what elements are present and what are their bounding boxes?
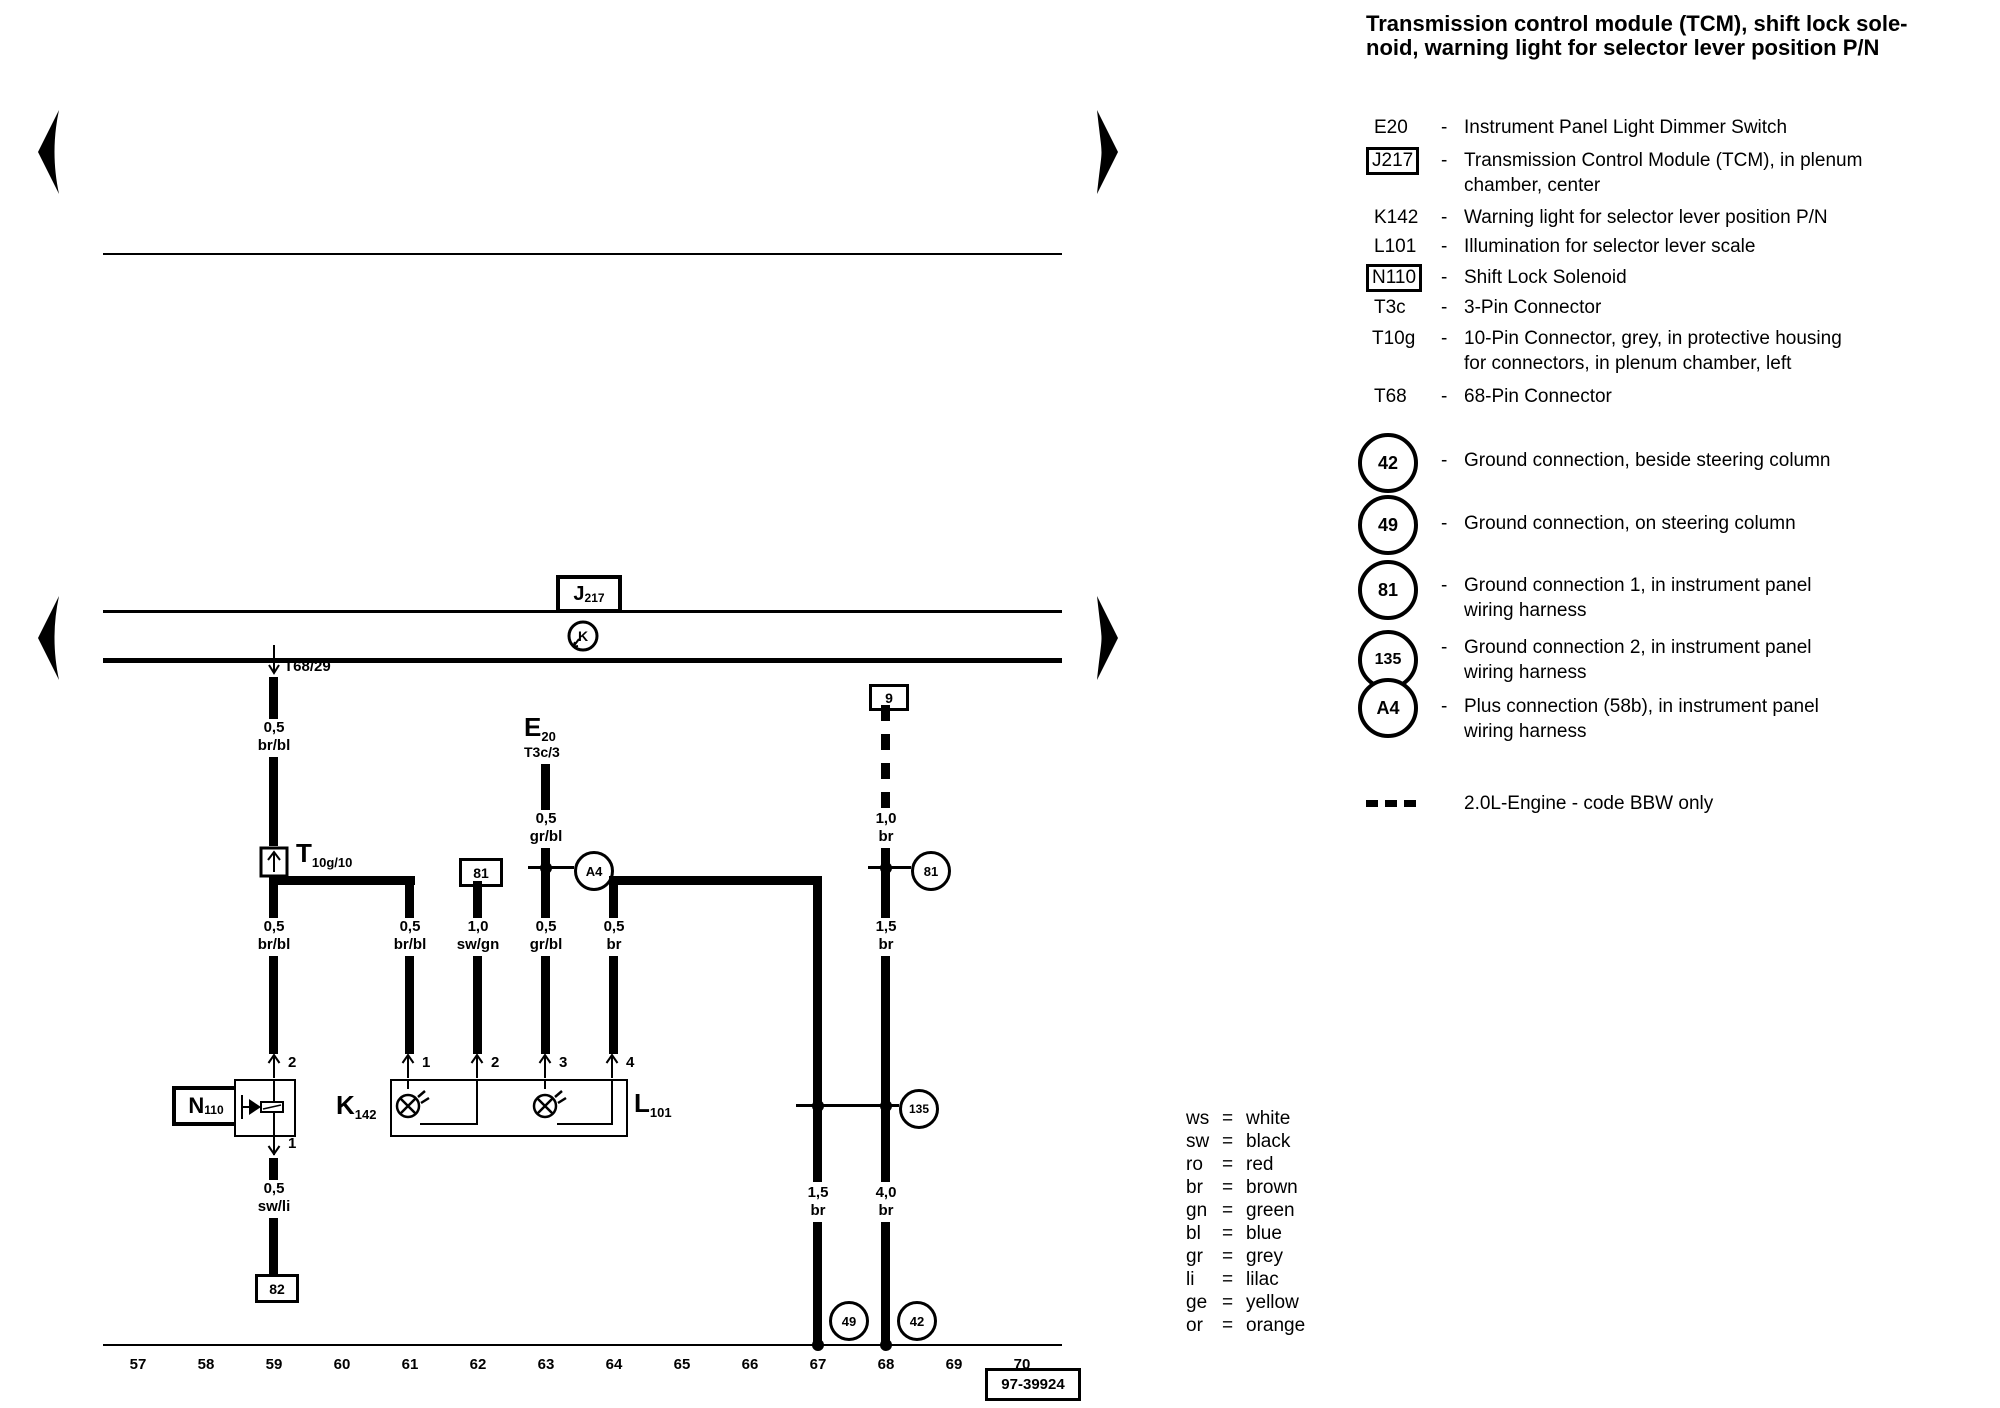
pin-arrow-up-icon: [267, 1052, 281, 1078]
ground-49-circle: 49: [829, 1301, 869, 1341]
legend-dash: -: [1441, 575, 1447, 596]
wire-label: 1,5 br: [808, 1184, 829, 1220]
wire-segment: [541, 956, 550, 1054]
continuation-arrow-right-icon: [1096, 596, 1120, 680]
lamp-pin-1: 1: [422, 1054, 430, 1071]
pin-arrow-up-icon: [605, 1052, 619, 1078]
color-abbr: sw: [1186, 1131, 1209, 1152]
svg-text:K: K: [578, 628, 588, 644]
separator-line: [103, 253, 1062, 255]
ground-legend-circle: 42: [1358, 433, 1418, 493]
wire-label: 0,5 sw/li: [258, 1180, 291, 1216]
legend-desc: 10-Pin Connector, grey, in protective ho…: [1464, 328, 1842, 349]
wire-segment: [609, 956, 618, 1054]
lamp-pin-2: 2: [491, 1054, 499, 1071]
plus-connection-a4-circle: A4: [574, 851, 614, 891]
ground-81-circle: 81: [911, 851, 951, 891]
legend-desc: for connectors, in plenum chamber, left: [1464, 353, 1791, 374]
circled-k-icon: K: [565, 620, 603, 654]
continuation-arrow-right-icon: [1096, 110, 1120, 194]
wire-segment: [541, 764, 550, 810]
legend-dash: -: [1441, 386, 1447, 407]
wire-segment: [609, 885, 618, 918]
legend-dash: -: [1441, 450, 1447, 471]
legend-dash: -: [1441, 236, 1447, 257]
color-name: brown: [1246, 1177, 1298, 1198]
equals-sign: =: [1222, 1315, 1233, 1336]
wire-branch: [609, 876, 822, 885]
lamp-icon: [531, 1088, 567, 1122]
wire-segment: [881, 956, 890, 1182]
color-abbr: gn: [1186, 1200, 1207, 1221]
wire-label: 1,0 sw/gn: [457, 918, 500, 954]
color-name: blue: [1246, 1223, 1282, 1244]
wire-segment: [269, 757, 278, 846]
ground-desc: Ground connection, on steering column: [1464, 513, 1796, 534]
wire-segment: [269, 1218, 278, 1274]
j217-letter: J: [573, 583, 584, 606]
wire-label: 0,5 br/bl: [258, 719, 291, 755]
color-name: lilac: [1246, 1269, 1279, 1290]
l101-label: L101: [634, 1088, 672, 1120]
legend-dash: -: [1441, 637, 1447, 658]
track-number: 59: [266, 1356, 283, 1373]
ground-desc: Ground connection 1, in instrument panel: [1464, 575, 1812, 596]
color-abbr: ge: [1186, 1292, 1207, 1313]
e20-pin-label: T3c/3: [524, 744, 560, 760]
wire-segment: [405, 885, 414, 918]
ground-desc: wiring harness: [1464, 600, 1587, 621]
legend-code: T3c: [1374, 297, 1406, 319]
track-number: 67: [810, 1356, 827, 1373]
terminal-82-box: 82: [255, 1274, 299, 1303]
continuation-arrow-left-icon: [36, 110, 60, 194]
color-abbr: gr: [1186, 1246, 1203, 1267]
ground-legend-circle: 49: [1358, 495, 1418, 555]
plus-connection-legend-circle: A4: [1358, 678, 1418, 738]
legend-code: T10g: [1372, 328, 1415, 350]
track-number: 62: [470, 1356, 487, 1373]
legend-code: N110: [1366, 264, 1422, 292]
equals-sign: =: [1222, 1223, 1233, 1244]
wire-label: 1,0 br: [876, 810, 897, 846]
color-abbr: bl: [1186, 1223, 1201, 1244]
legend-desc: 68-Pin Connector: [1464, 386, 1612, 407]
ground-legend-circle: 81: [1358, 560, 1418, 620]
wire-segment: [881, 1222, 890, 1348]
tcm-j217-box: J217: [556, 575, 622, 613]
dashed-wire-bbw: [881, 705, 890, 809]
equals-sign: =: [1222, 1177, 1233, 1198]
wire-segment: [269, 956, 278, 1054]
wire-label: 0,5 br: [604, 918, 625, 954]
ground-desc: Plus connection (58b), in instrument pan…: [1464, 696, 1819, 717]
legend-code: E20: [1374, 117, 1408, 139]
legend-dash: -: [1441, 328, 1447, 349]
equals-sign: =: [1222, 1154, 1233, 1175]
j217-sub: 217: [585, 591, 605, 605]
ground-desc: Ground connection 2, in instrument panel: [1464, 637, 1812, 658]
legend-desc: Shift Lock Solenoid: [1464, 267, 1627, 288]
wire-segment: [881, 848, 890, 918]
lamp-internal-line: [420, 1123, 478, 1125]
pin-arrow-up-icon: [470, 1052, 484, 1078]
wire-label: 1,5 br: [876, 918, 897, 954]
n110-pin-bottom: 1: [288, 1135, 296, 1152]
pin-arrow-up-icon: [538, 1052, 552, 1078]
track-number: 68: [878, 1356, 895, 1373]
diagram-ref-box: 97-39924: [985, 1368, 1081, 1401]
equals-sign: =: [1222, 1108, 1233, 1129]
legend-dash: -: [1441, 117, 1447, 138]
legend-desc: Instrument Panel Light Dimmer Switch: [1464, 117, 1787, 138]
wire-branch: [269, 876, 415, 885]
lamp-icon: [394, 1088, 430, 1122]
equals-sign: =: [1222, 1269, 1233, 1290]
legend-desc: chamber, center: [1464, 175, 1600, 196]
track-number: 65: [674, 1356, 691, 1373]
wire-label: 4,0 br: [876, 1184, 897, 1220]
track-number: 63: [538, 1356, 555, 1373]
connector-t10g-icon: [259, 846, 289, 878]
color-abbr: ro: [1186, 1154, 1203, 1175]
color-name: yellow: [1246, 1292, 1299, 1313]
color-abbr: or: [1186, 1315, 1203, 1336]
wire-segment: [473, 881, 482, 918]
page-title-line2: noid, warning light for selector lever p…: [1366, 36, 1879, 60]
legend-dash: -: [1441, 696, 1447, 717]
legend-desc: Illumination for selector lever scale: [1464, 236, 1755, 257]
wire-segment: [813, 885, 822, 1182]
pin-arrow-down-icon: [267, 1133, 281, 1157]
page-title-line1: Transmission control module (TCM), shift…: [1366, 12, 1908, 36]
lamp-internal-line: [557, 1123, 613, 1125]
legend-desc: 3-Pin Connector: [1464, 297, 1601, 318]
legend-code: T68: [1374, 386, 1407, 408]
color-abbr: li: [1186, 1269, 1194, 1290]
color-name: white: [1246, 1108, 1290, 1129]
track-number: 61: [402, 1356, 419, 1373]
equals-sign: =: [1222, 1292, 1233, 1313]
solenoid-valve-icon: [238, 1093, 290, 1121]
n110-pin-top: 2: [288, 1054, 296, 1071]
legend-desc: Warning light for selector lever positio…: [1464, 207, 1828, 228]
color-name: green: [1246, 1200, 1295, 1221]
t10g-label: T10g/10: [296, 838, 352, 870]
legend-dash: -: [1441, 267, 1447, 288]
junction-dot: [812, 1100, 824, 1112]
track-number: 57: [130, 1356, 147, 1373]
continuation-arrow-left-icon: [36, 596, 60, 680]
wire-label: 0,5 gr/bl: [530, 810, 563, 846]
bus-line-bottom: [103, 658, 1062, 663]
color-abbr: ws: [1186, 1108, 1209, 1129]
wire-segment: [269, 1158, 278, 1180]
pin-arrow-down-icon: [267, 645, 281, 677]
track-scale-line: [103, 1344, 1062, 1346]
equals-sign: =: [1222, 1131, 1233, 1152]
track-number: 64: [606, 1356, 623, 1373]
track-number: 60: [334, 1356, 351, 1373]
track-number: 69: [946, 1356, 963, 1373]
ground-42-circle: 42: [897, 1301, 937, 1341]
ground-desc: wiring harness: [1464, 662, 1587, 683]
wire-label: 0,5 br/bl: [394, 918, 427, 954]
engine-note: 2.0L-Engine - code BBW only: [1464, 793, 1713, 814]
pin-arrow-up-icon: [401, 1052, 415, 1078]
legend-dash: -: [1441, 207, 1447, 228]
legend-code: J217: [1366, 147, 1419, 175]
ground-135-circle: 135: [899, 1089, 939, 1129]
legend-code: L101: [1374, 236, 1416, 258]
k142-label: K142: [336, 1090, 376, 1122]
equals-sign: =: [1222, 1200, 1233, 1221]
wire-segment: [813, 1222, 822, 1348]
ground-desc: Ground connection, beside steering colum…: [1464, 450, 1831, 471]
t68-pin-label: T68/29: [284, 658, 331, 675]
color-name: red: [1246, 1154, 1273, 1175]
e20-label: E20: [524, 712, 556, 744]
junction-dot: [880, 862, 892, 874]
junction-dot: [540, 862, 552, 874]
lamp-internal-line: [476, 1079, 478, 1125]
lamp-pin-4: 4: [626, 1054, 634, 1071]
dashed-line-icon: [1366, 800, 1418, 807]
legend-desc: Transmission Control Module (TCM), in pl…: [1464, 150, 1862, 171]
legend-dash: -: [1441, 513, 1447, 534]
wire-label: 0,5 br/bl: [258, 918, 291, 954]
legend-dash: -: [1441, 150, 1447, 171]
legend-dash: -: [1441, 297, 1447, 318]
color-name: orange: [1246, 1315, 1305, 1336]
wire-segment: [541, 848, 550, 918]
wire-segment: [269, 677, 278, 719]
color-name: grey: [1246, 1246, 1283, 1267]
equals-sign: =: [1222, 1246, 1233, 1267]
track-number: 66: [742, 1356, 759, 1373]
color-name: black: [1246, 1131, 1290, 1152]
track-number: 58: [198, 1356, 215, 1373]
wire-segment: [405, 956, 414, 1054]
lamp-pin-3: 3: [559, 1054, 567, 1071]
wire-label: 0,5 gr/bl: [530, 918, 563, 954]
ground-desc: wiring harness: [1464, 721, 1587, 742]
wiring-diagram-page: J217 K T68/29 0,5 br/bl T10g/10 0,5 br/b…: [0, 0, 2000, 1408]
wire-segment: [473, 956, 482, 1054]
n110-name-box: N110: [172, 1086, 240, 1126]
color-abbr: br: [1186, 1177, 1203, 1198]
legend-code: K142: [1374, 207, 1418, 229]
lamp-internal-line: [611, 1079, 613, 1125]
